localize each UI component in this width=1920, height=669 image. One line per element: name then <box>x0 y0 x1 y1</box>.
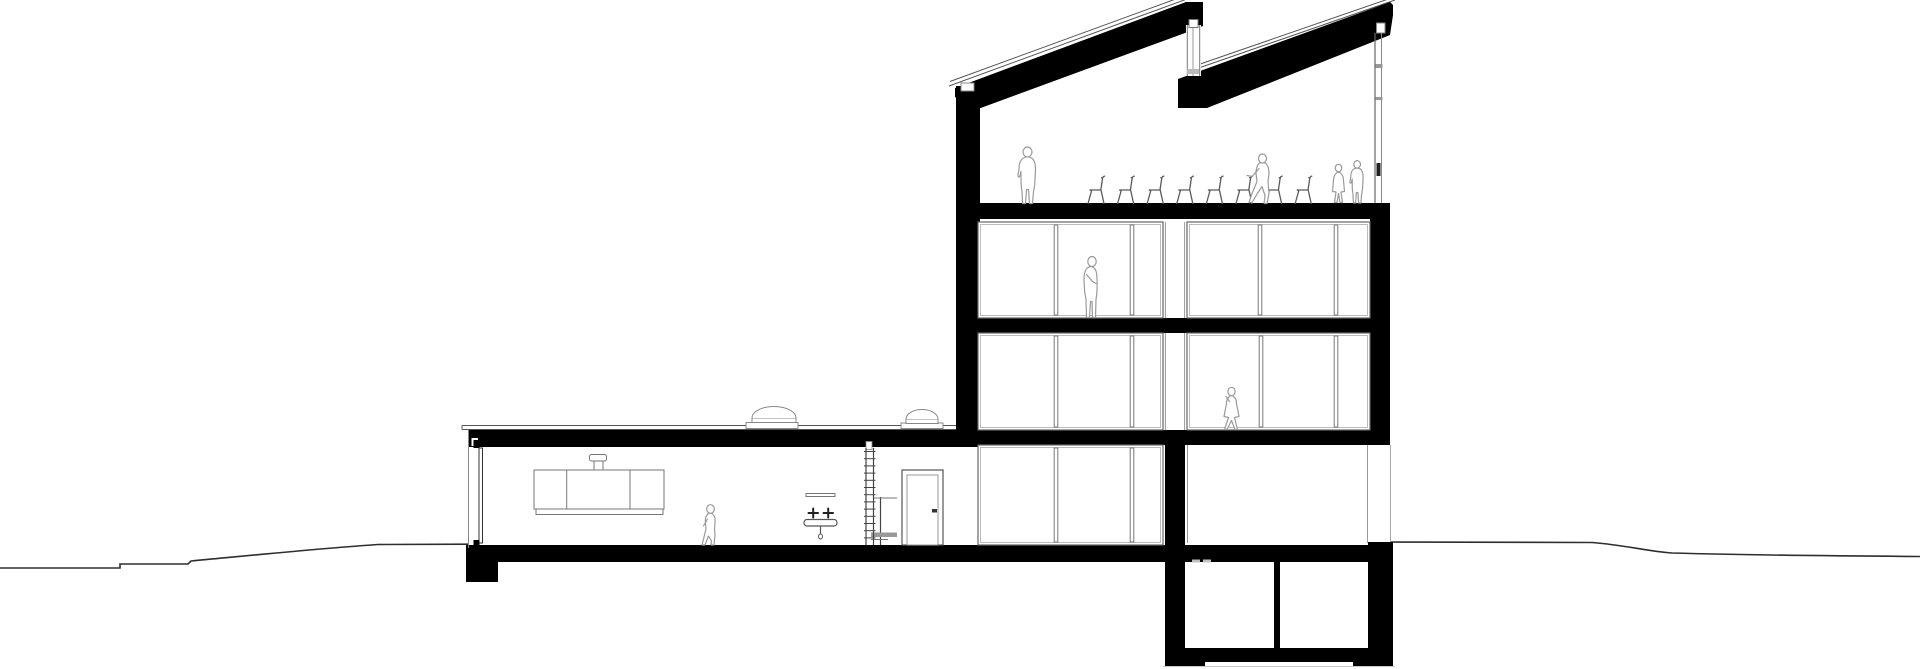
figure-standing-woman-topfloor-body <box>1333 172 1345 202</box>
figure-child-wing <box>702 505 715 545</box>
window-band-l2-left-mullion-1 <box>1130 336 1134 427</box>
figure-child-wing-head <box>707 505 715 514</box>
tower-left-wall <box>956 86 980 446</box>
figure-standing-man-topfloor <box>1018 147 1036 204</box>
figure-child-wing-body <box>702 513 715 545</box>
ladder-step-bar <box>871 533 897 538</box>
window-band-l2-left <box>978 333 1163 430</box>
window-band-l3-left-mullion-1 <box>1130 225 1134 315</box>
figure-standing-woman-topfloor <box>1333 164 1345 202</box>
ladder-top-fixing <box>866 442 872 450</box>
chair-8 <box>1295 176 1312 203</box>
window-band-gf-left-mullion-1 <box>1130 448 1134 542</box>
wing-left-glazing-tick-top <box>474 440 480 448</box>
chair-1 <box>1088 176 1105 203</box>
basement-footing-left <box>1165 648 1205 666</box>
skylight-dome-2-dome <box>906 410 938 420</box>
figure-standing-man-topfloor-body <box>1018 157 1036 204</box>
wall-cabinet-base <box>536 509 663 515</box>
basement-divider-wall <box>1274 562 1280 650</box>
pendant-cap <box>590 455 607 462</box>
window-band-l3-right <box>1187 222 1370 318</box>
building-section-canvas <box>0 0 1920 669</box>
clerestory-frame-box <box>1189 20 1198 28</box>
left-footing <box>466 545 498 582</box>
topfloor-glazing-transom-b <box>1376 97 1383 100</box>
top-floor-slab <box>956 203 1390 219</box>
mid-wall <box>1165 445 1185 562</box>
figure-standing-person-level3-head <box>1088 257 1096 267</box>
figure-standing-man-topfloor-head <box>1023 147 1032 157</box>
roof-vent <box>961 83 974 91</box>
window-band-gf-left <box>978 445 1163 545</box>
figure-walking-man-topfloor-head <box>1259 154 1267 163</box>
wall-cabinet <box>534 470 664 509</box>
figure-standing-man-pair-head <box>1354 161 1361 169</box>
door-handle <box>932 509 937 513</box>
tower-right-wall <box>1370 218 1390 432</box>
gf-floor-dash-a <box>1192 560 1200 563</box>
skylight-dome-2-curb <box>906 419 938 424</box>
window-band-l3-left <box>978 222 1163 318</box>
figure-standing-woman-topfloor-head <box>1335 164 1341 172</box>
topfloor-glazing-transom-a <box>1376 64 1383 68</box>
wall-strip-l3 <box>1165 222 1185 318</box>
level3-slab <box>956 318 1390 333</box>
ground-line-right <box>1391 542 1920 557</box>
chair-4 <box>1177 176 1194 203</box>
window-band-l3-right-mullion-1 <box>1334 225 1338 315</box>
window-band-l3-right-mullion-0 <box>1258 225 1262 315</box>
wing-left-glazing <box>479 448 483 543</box>
roof-slope-1 <box>955 2 1203 109</box>
window-band-l2-left-mullion-0 <box>1054 336 1058 427</box>
wing-left-glazing-tick-bottom <box>474 540 480 548</box>
window-band-l2-right <box>1187 333 1370 430</box>
wall-strip-l2 <box>1165 333 1185 430</box>
basin-tap-right <box>824 509 834 518</box>
topfloor-glazing-mark <box>1377 163 1381 176</box>
window-band-l2-right-mullion-0 <box>1259 336 1263 427</box>
chair-2 <box>1118 176 1135 203</box>
building-section-drawing <box>0 0 1920 669</box>
gf-floor-dash-b <box>1203 560 1211 563</box>
roof-slope-2 <box>1178 2 1393 108</box>
chair-5 <box>1206 176 1223 203</box>
basement-right-wall <box>1368 542 1393 650</box>
figure-standing-man-pair <box>1350 161 1363 203</box>
ground-line-left <box>0 544 468 568</box>
window-band-gf-left-mullion-0 <box>1054 448 1058 542</box>
level2-slab <box>956 430 1390 445</box>
basement-left-wall <box>1165 562 1185 650</box>
window-band-l2-right-mullion-1 <box>1334 336 1338 427</box>
ground-floor-slab <box>466 545 1390 562</box>
basin-bowl <box>804 520 837 527</box>
skylight-dome-1-curb <box>752 418 796 423</box>
basin-mirror <box>806 494 835 497</box>
basin-tap-left <box>809 509 819 518</box>
wing-roof-slab <box>468 430 980 447</box>
skylight-dome-1-dome <box>752 407 796 418</box>
clerestory-sill <box>1187 69 1199 74</box>
basin-drain-trap <box>819 534 823 539</box>
topfloor-glazing-head <box>1377 23 1386 33</box>
skylight-dome-1-base <box>746 423 798 429</box>
basement-footing-right <box>1353 648 1393 666</box>
window-band-l3-left-mullion-0 <box>1054 225 1058 315</box>
chair-3 <box>1147 176 1164 203</box>
figure-standing-man-pair-body <box>1350 168 1363 203</box>
figure-walking-woman-level2-head <box>1228 387 1235 395</box>
